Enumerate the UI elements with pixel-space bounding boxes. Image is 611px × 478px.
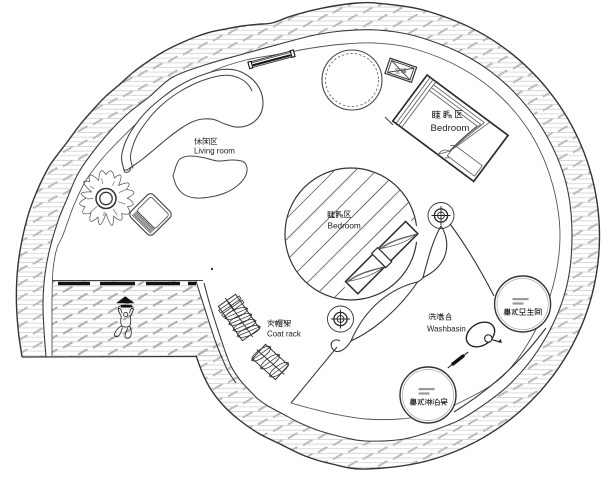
svg-text:Living room: Living room — [194, 147, 235, 156]
svg-text:Bedroom: Bedroom — [431, 123, 470, 134]
svg-text:Bedroom: Bedroom — [328, 222, 361, 231]
svg-text:Coat rack: Coat rack — [267, 330, 301, 339]
svg-text:Washbasin: Washbasin — [427, 325, 466, 334]
